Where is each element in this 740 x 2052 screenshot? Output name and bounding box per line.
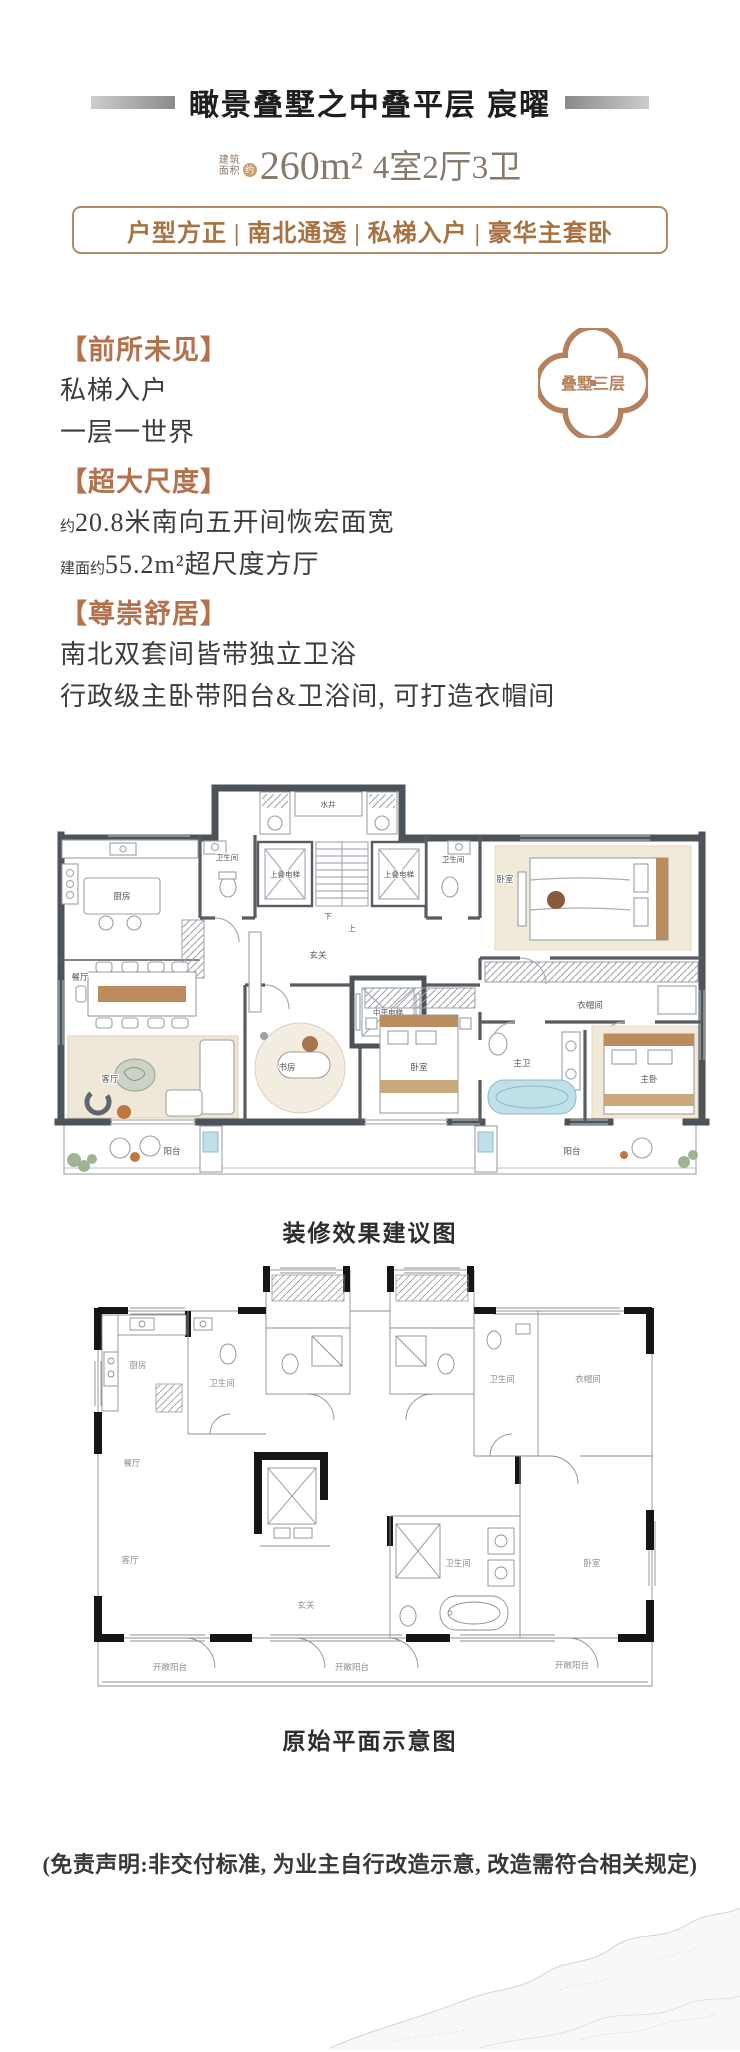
dining-label: 餐厅: [123, 1458, 141, 1468]
cloakroom-label: 衣帽间: [575, 1374, 601, 1384]
section-line: 建面约55.2m²超尺度方厅: [60, 544, 600, 586]
three-storey-badge: 叠墅三层: [538, 328, 648, 438]
section-line: 一层一世界: [60, 412, 600, 454]
section-line: 约20.8米南向五开间恢宏面宽: [60, 502, 600, 544]
bedroom-north-label: 卧室: [496, 874, 514, 884]
header: 瞰景叠墅之中叠平层 宸曜: [0, 80, 740, 124]
bath-right: 卫生间: [442, 841, 470, 897]
section-title: 【前所未见】: [60, 330, 600, 370]
bath-b: 卫生间: [487, 1324, 530, 1456]
title-bar-left: [91, 96, 175, 109]
elevator-right-label: 上叠电梯: [384, 869, 414, 879]
living-label: 客厅: [101, 1074, 119, 1084]
bedroom-south-label: 卧室: [410, 1062, 428, 1072]
stair-blocks: [272, 1275, 468, 1420]
approx-dot: 约: [243, 163, 257, 177]
terrace-center-label: 开敞阳台: [335, 1662, 369, 1672]
elevator-left-label: 上叠电梯: [270, 869, 300, 879]
area-value: 260m²: [260, 146, 363, 186]
area-spec-label: 建筑 面积: [219, 155, 241, 177]
kitchen: 厨房: [62, 840, 204, 978]
poster-page: 瞰景叠墅之中叠平层 宸曜 建筑 面积 约 260m² 4室2厅3卫 户型方正 |…: [0, 0, 740, 2052]
bedroom-north: 卧室: [495, 846, 691, 950]
living-label: 客厅: [121, 1555, 139, 1565]
section-line: 南北双套间皆带独立卫浴: [60, 634, 600, 676]
dining-label: 餐厅: [71, 972, 89, 982]
section-title: 【尊崇舒居】: [60, 594, 600, 634]
stair-up-label: 上: [348, 924, 356, 933]
bedroom-label: 卧室: [583, 1558, 601, 1568]
area-label-bottom: 面积: [219, 166, 241, 177]
stair-down-label: 下: [324, 912, 332, 921]
bath-a: 卫生间: [194, 1318, 236, 1434]
bath-c: 卫生间: [396, 1524, 514, 1630]
line-text: 南北双套间皆带独立卫浴: [60, 640, 357, 669]
line-prefix: 建面约: [60, 561, 105, 577]
line-prefix: 约: [60, 519, 75, 535]
bath-c-label: 卫生间: [445, 1558, 471, 1568]
master-bath: 主卫: [488, 1032, 580, 1114]
cloakroom-label: 衣帽间: [577, 1000, 603, 1010]
line-text: 私梯入户: [60, 376, 168, 405]
master-bath-label: 主卫: [513, 1058, 531, 1068]
line-text: 一层一世界: [60, 418, 195, 447]
elevator-core: [260, 1468, 330, 1546]
bath-right-label: 卫生间: [442, 854, 465, 864]
rooms-value: 4室2厅3卫: [373, 151, 522, 186]
study-label: 书房: [278, 1062, 295, 1072]
original-floor-plan: 厨房 卫生间: [90, 1266, 660, 1701]
balcony-right: 阳台: [563, 1138, 698, 1168]
upper-elevators-stairs: 上叠电梯 下 上 上叠电梯: [258, 842, 426, 933]
foyer-label: 玄关: [309, 950, 327, 960]
area-spec: 建筑 面积 约 260m² 4室2厅3卫: [0, 146, 740, 186]
bath-left: 卫生间: [204, 841, 238, 897]
kitchen-label: 厨房: [129, 1360, 146, 1370]
line-text: 行政级主卧带阳台&卫浴间, 可打造衣帽间: [60, 682, 555, 711]
study: 书房: [255, 1023, 345, 1113]
selling-points-box: 户型方正 | 南北通透 | 私梯入户 | 豪华主套卧: [72, 206, 668, 254]
foyer-label: 玄关: [297, 1600, 315, 1610]
bath-left-label: 卫生间: [216, 852, 239, 862]
kitchen: 厨房: [102, 1315, 186, 1412]
section-scale: 【超大尺度】 约20.8米南向五开间恢宏面宽 建面约55.2m²超尺度方厅: [60, 462, 600, 586]
stair-block: 水井: [260, 792, 397, 834]
feature-sections: 【前所未见】 私梯入户 一层一世界 【超大尺度】 约20.8米南向五开间恢宏面宽…: [60, 330, 600, 726]
terrace-right-label: 开敞阳台: [555, 1660, 589, 1670]
bath-a-label: 卫生间: [209, 1378, 235, 1388]
page-title: 瞰景叠墅之中叠平层 宸曜: [189, 80, 551, 124]
decorated-floor-plan: 厨房 卫生间 水井 上叠电梯 下 上 上叠电梯: [50, 780, 710, 1185]
title-bar-right: [565, 96, 649, 109]
living: 客厅: [68, 1036, 238, 1119]
section-unprecedented: 【前所未见】 私梯入户 一层一世界: [60, 330, 600, 454]
section-line: 私梯入户: [60, 370, 600, 412]
master-bedroom-label: 主卧: [640, 1074, 658, 1084]
section-line: 行政级主卧带阳台&卫浴间, 可打造衣帽间: [60, 676, 600, 718]
terrace-door-arcs: [185, 1638, 598, 1668]
mountain-sketch-icon: [330, 1890, 740, 2052]
line-text: 55.2m²超尺度方厅: [105, 550, 320, 579]
cloakroom: 衣帽间: [485, 962, 698, 1014]
disclaimer-text: (免责声明:非交付标准, 为业主自行改造示意, 改造需符合相关规定): [0, 1847, 740, 1879]
badge-label: 叠墅三层: [561, 375, 625, 393]
kitchen-label: 厨房: [113, 891, 130, 901]
master-bedroom: 主卧: [592, 1026, 698, 1118]
section-title: 【超大尺度】: [60, 462, 600, 502]
bath-b-label: 卫生间: [489, 1374, 515, 1384]
balcony-left-label: 阳台: [163, 1146, 180, 1156]
section-comfort: 【尊崇舒居】 南北双套间皆带独立卫浴 行政级主卧带阳台&卫浴间, 可打造衣帽间: [60, 594, 600, 718]
line-text: 20.8米南向五开间恢宏面宽: [75, 508, 395, 537]
cloakroom: 衣帽间: [550, 1374, 601, 1484]
dining: 餐厅: [71, 962, 196, 1028]
decorated-plan-caption: 装修效果建议图: [0, 1214, 740, 1248]
balcony-left: 阳台: [67, 1126, 497, 1172]
area-label-top: 建筑: [219, 155, 241, 166]
balcony-right-label: 阳台: [563, 1146, 580, 1156]
quatrefoil-icon: 叠墅三层: [538, 328, 648, 438]
original-plan-caption: 原始平面示意图: [0, 1722, 740, 1756]
terrace-left-label: 开敞阳台: [153, 1662, 187, 1672]
bedroom-south: 卧室: [365, 988, 475, 1113]
water-well-label: 水井: [321, 799, 336, 809]
